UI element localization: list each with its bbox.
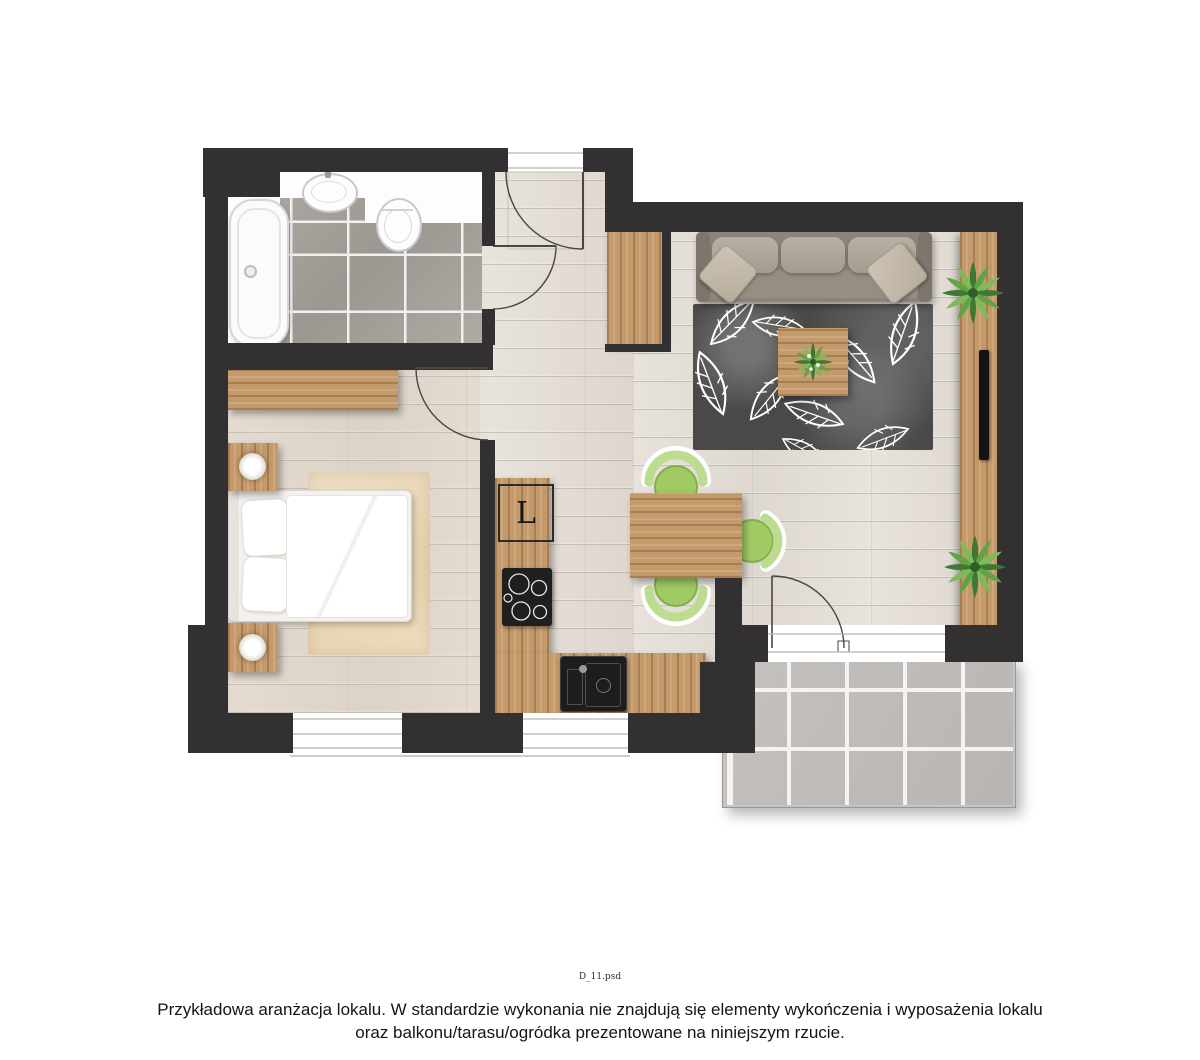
dining-table [630, 493, 742, 578]
bed [228, 490, 412, 622]
bed-headboard [229, 491, 239, 621]
bed-pillow-1 [241, 498, 291, 557]
washbasin-bowl [311, 181, 347, 203]
floor-plan-canvas: L [0, 0, 1200, 1060]
wall-bedroom-kitchen [480, 440, 495, 713]
balcony-door-glazing [768, 625, 945, 662]
tv [979, 350, 989, 460]
nightstand-lamp-bottom [239, 634, 266, 661]
wall-left [205, 148, 228, 753]
cooktop [502, 568, 552, 626]
wall-hall-closet-bottom [605, 344, 671, 352]
window-kitchen [523, 713, 628, 753]
kitchen-sink [560, 656, 627, 712]
wall-bathroom-right-upper [482, 170, 495, 246]
balcony-terrace [722, 658, 1016, 808]
wall-dining-column [715, 578, 742, 662]
caption-line-2: oraz balkonu/tarasu/ogródka prezentowane… [0, 1021, 1200, 1044]
wall-balcony-corner-block [700, 662, 755, 753]
wall-top-living [633, 202, 1023, 232]
wall-balcony-left-jamb [742, 625, 768, 662]
hall-wardrobe [607, 228, 662, 344]
potted-plant-bottom [935, 527, 1015, 607]
wall-bottom-seg1 [188, 713, 293, 753]
kitchen-sink-drain [596, 678, 611, 693]
sofa-back-cushion-2 [781, 237, 845, 273]
bed-pillow-2 [241, 556, 291, 613]
wall-balcony-right-jamb [945, 625, 1023, 662]
wall-top-bathroom [203, 148, 508, 172]
wall-bathroom-right-lower [482, 309, 495, 345]
toilet [376, 198, 422, 252]
wall-top-step [605, 148, 633, 232]
window-bedroom [293, 713, 402, 753]
wall-bathroom-bottom [205, 343, 493, 370]
wall-hall-closet-right [662, 207, 671, 352]
fridge-label: L [516, 496, 536, 531]
wall-bottom-seg2 [402, 713, 523, 753]
potted-plant-top [933, 253, 1013, 333]
toilet-seat [384, 209, 412, 243]
bedroom-wardrobe [228, 366, 398, 410]
nightstand-lamp-top [239, 453, 266, 480]
coffee-table-plant [783, 332, 843, 392]
washbasin [302, 173, 358, 213]
plan-filename: D_11.psd [0, 972, 1200, 982]
cooktop-burners [502, 568, 552, 626]
kitchen-sink-left-bowl [567, 669, 583, 705]
window-sill-line [290, 755, 630, 757]
fridge: L [498, 484, 554, 542]
kitchen-faucet [579, 665, 587, 673]
caption-line-1: Przykładowa aranżacja lokalu. W standard… [0, 998, 1200, 1021]
toilet-hinge [381, 209, 413, 211]
bed-duvet [286, 495, 408, 618]
bathtub [229, 199, 289, 348]
sofa [696, 232, 932, 302]
bathtub-drain [244, 265, 257, 278]
entrance-threshold [508, 148, 583, 172]
